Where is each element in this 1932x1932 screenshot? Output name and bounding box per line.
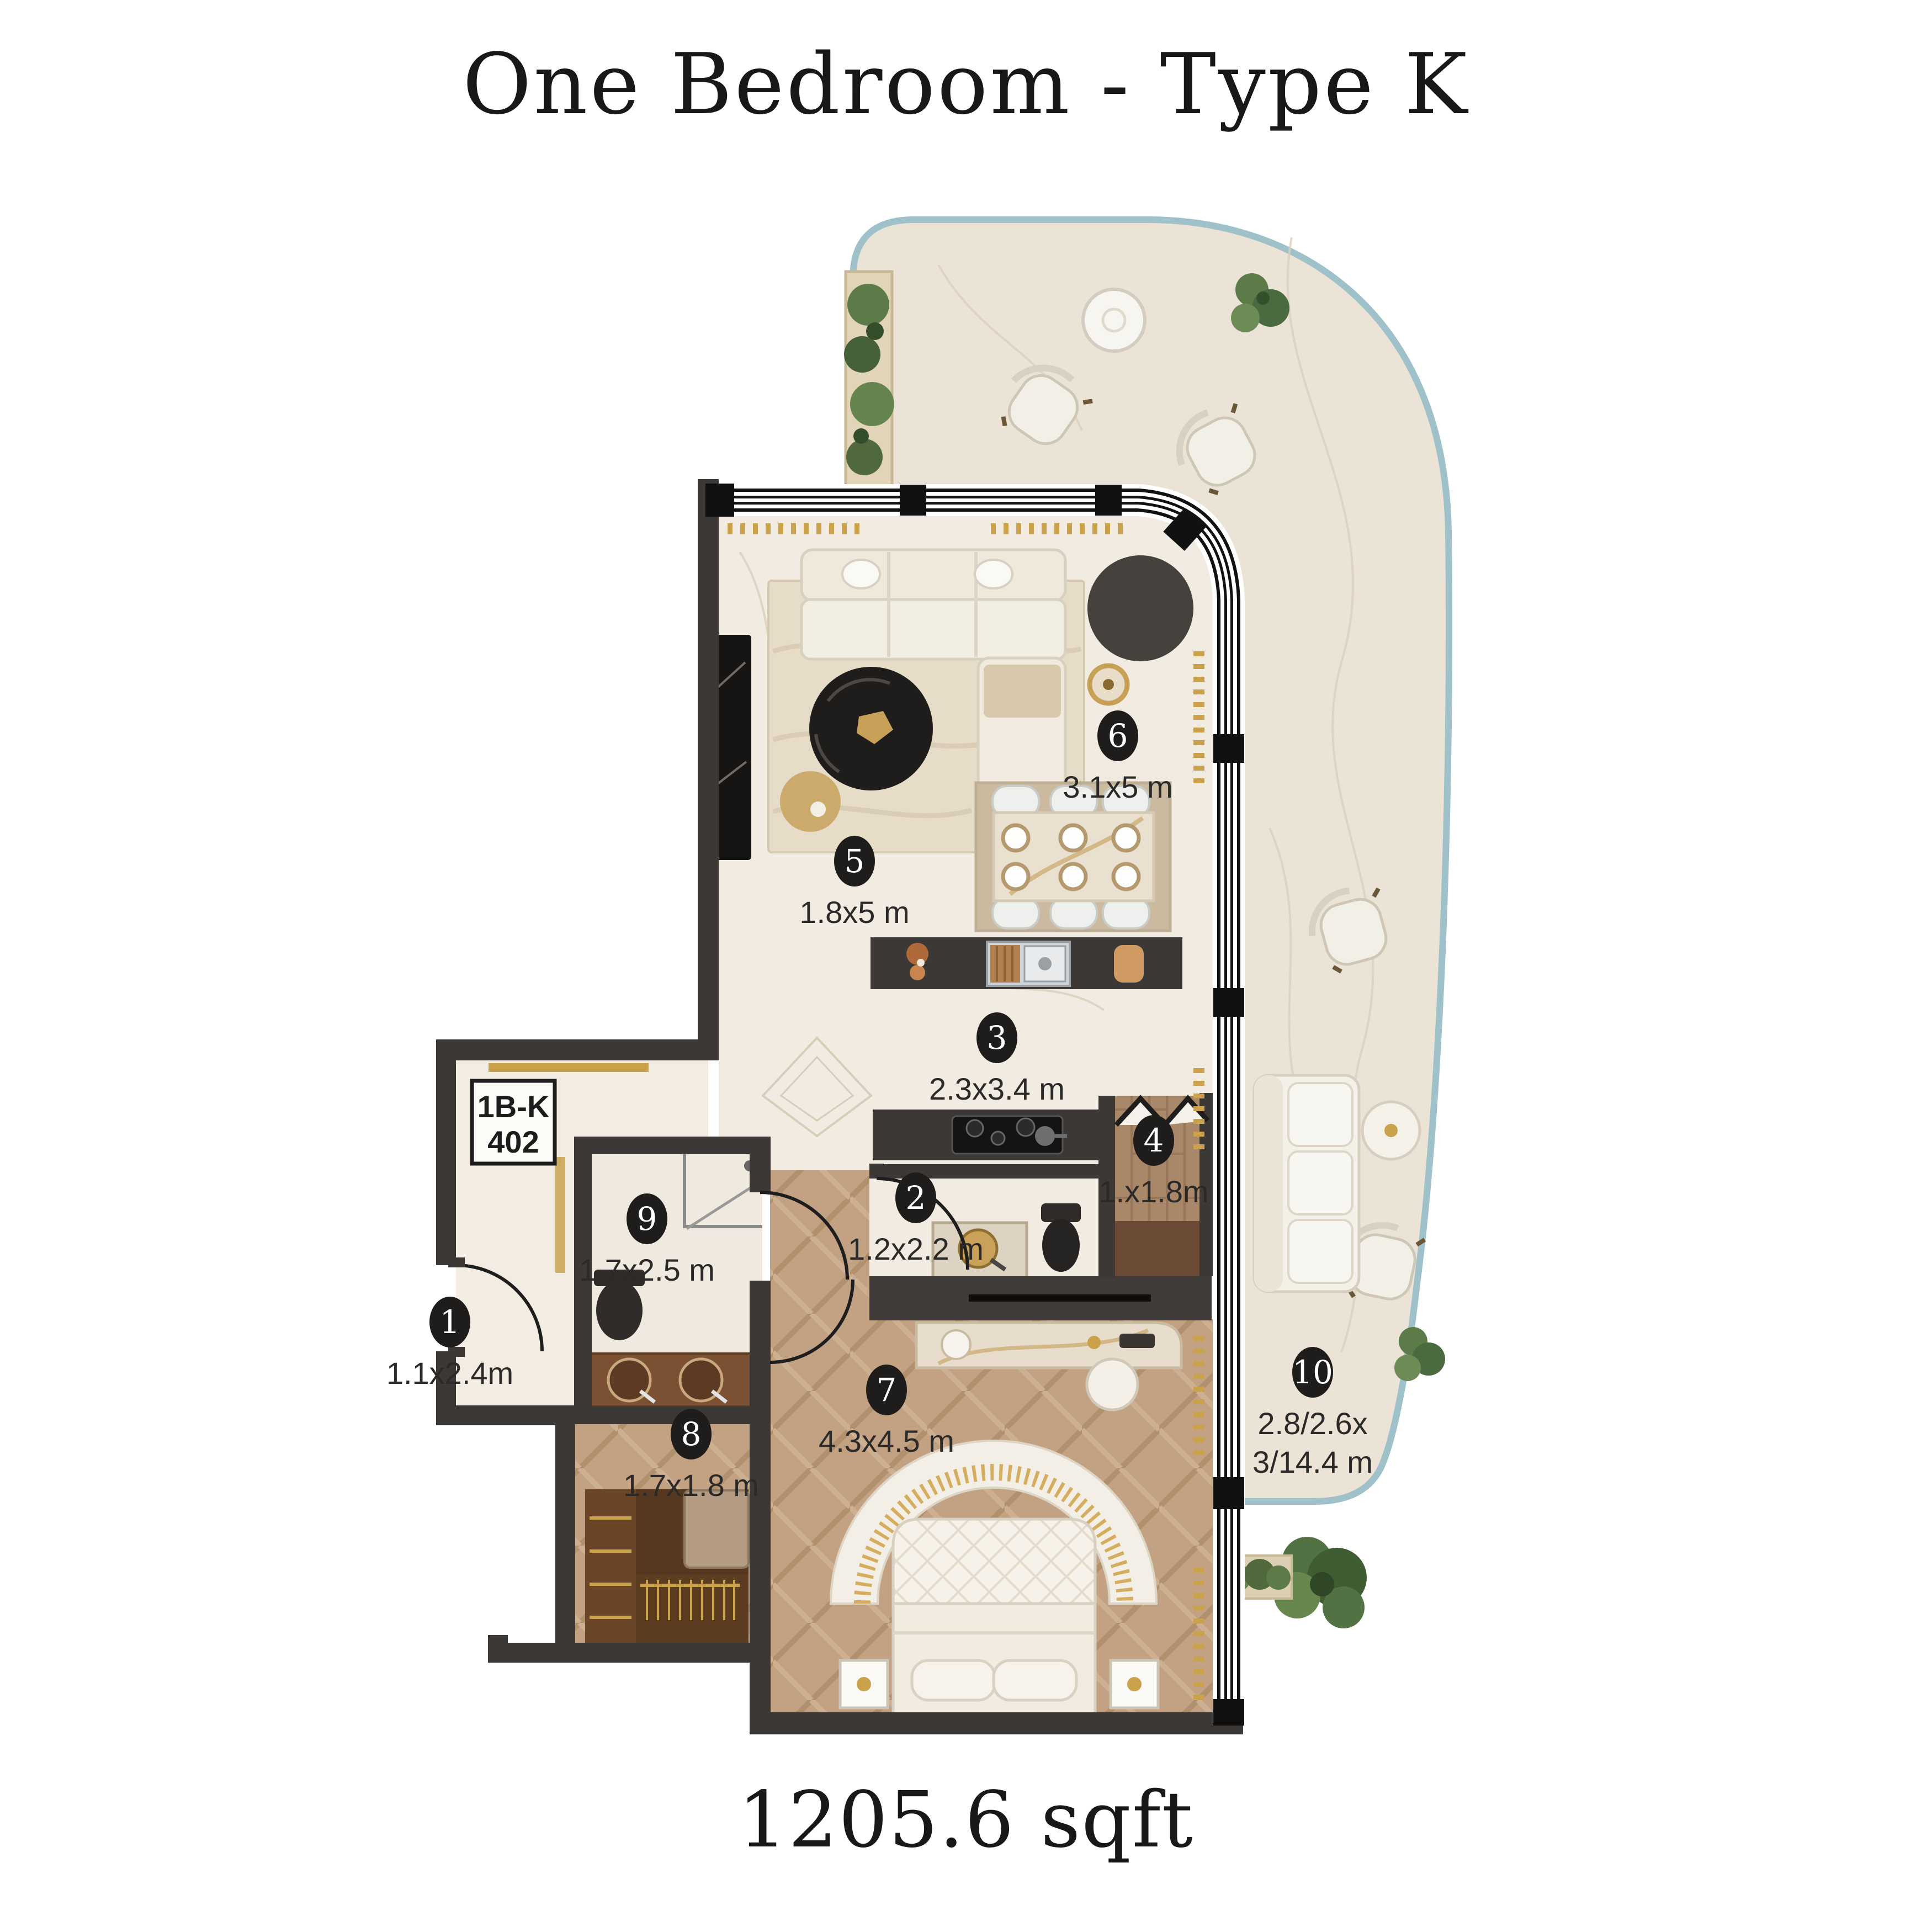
bedroom-tv [969, 1294, 1151, 1302]
terrace-round-table [1083, 289, 1145, 351]
unit-label-line2: 402 [487, 1124, 539, 1159]
marker-dimension: 2.8/2.6x [1257, 1406, 1367, 1441]
entry-door-leaf [448, 1257, 465, 1267]
desk-stool [1087, 1359, 1138, 1410]
marker-dimension: 1.7x2.5 m [579, 1252, 715, 1287]
marker-dimension: 2.3x3.4 m [929, 1071, 1065, 1106]
marker-number: 7 [877, 1371, 897, 1409]
marker-number: 8 [681, 1415, 702, 1453]
floor-plan-canvas: 1B-K 402 11.1x2.4m21.2x2.2 m32.3x3.4 m41… [0, 0, 1932, 1932]
marker-dimension: 1.8x5 m [799, 895, 909, 930]
marker-number: 6 [1108, 717, 1128, 755]
unit-label-line1: 1B-K [477, 1089, 550, 1124]
marker-dimension: 1.2x2.2 m [848, 1232, 984, 1266]
marker-number: 2 [906, 1179, 926, 1217]
marker-number: 3 [987, 1019, 1007, 1057]
marker-number: 5 [845, 842, 865, 880]
kitchen-island [873, 1110, 1105, 1160]
marker-dimension: 4.3x4.5 m [819, 1424, 954, 1458]
area-label: 1205.6 sqft [738, 1775, 1194, 1865]
marker-number: 4 [1144, 1122, 1164, 1159]
marker-dimension: 3.1x5 m [1063, 769, 1172, 804]
bedroom-desk [916, 1323, 1181, 1368]
dining-area [976, 783, 1170, 931]
utility-mat [1110, 1221, 1208, 1276]
kitchen-counter [871, 937, 1182, 989]
reading-pod [1087, 555, 1193, 661]
marker-dimension: 1.x1.8m [1098, 1174, 1208, 1209]
marker-number: 9 [637, 1200, 657, 1238]
entry-gold-rack [489, 1063, 649, 1072]
marker-dimension: 1.1x2.4m [386, 1356, 513, 1390]
unit-label-box: 1B-K 402 [472, 1081, 555, 1164]
terrace-side-table [1362, 1102, 1420, 1159]
marker-dimension: 1.7x1.8 m [623, 1468, 759, 1503]
bathroom-vanity [586, 1354, 760, 1406]
powder-toilet [1041, 1203, 1081, 1272]
page-title: One Bedroom - Type K [463, 35, 1469, 133]
terrace-planter [844, 272, 894, 496]
wardrobe [585, 1489, 749, 1654]
marker-number: 1 [440, 1303, 460, 1341]
bathroom-shelf [555, 1157, 565, 1273]
marker-number: 10 [1292, 1354, 1333, 1391]
dining-table [994, 813, 1154, 901]
marker-dimension: 3/14.4 m [1252, 1445, 1373, 1479]
terrace-sofa [1254, 1075, 1359, 1292]
gold-side-table [1090, 666, 1127, 703]
